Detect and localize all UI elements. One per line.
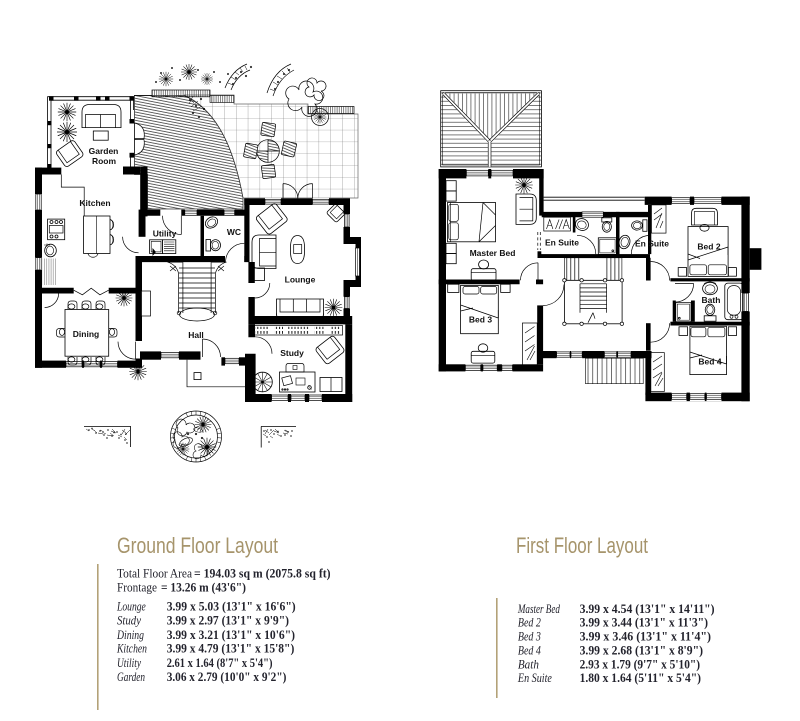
svg-text:Bath: Bath bbox=[702, 295, 721, 305]
svg-text:Hall: Hall bbox=[188, 330, 204, 340]
svg-text:1.80 x 1.64 (5'11" x 5'4"): 1.80 x 1.64 (5'11" x 5'4") bbox=[580, 670, 701, 685]
svg-text:Garden: Garden bbox=[117, 669, 145, 684]
svg-text:Utility: Utility bbox=[153, 229, 177, 239]
svg-text:3.99 x 5.03 (13'1" x 16'6"): 3.99 x 5.03 (13'1" x 16'6") bbox=[167, 599, 296, 614]
svg-text:En Suite: En Suite bbox=[545, 238, 579, 248]
svg-text:Bed 3: Bed 3 bbox=[518, 629, 541, 644]
svg-text:En Suite: En Suite bbox=[635, 239, 669, 249]
svg-text:= 194.03 sq m (2075.8 sq ft): = 194.03 sq m (2075.8 sq ft) bbox=[194, 565, 331, 580]
svg-text:Bed 3: Bed 3 bbox=[469, 315, 492, 325]
svg-text:Study: Study bbox=[117, 613, 141, 628]
svg-text:Frontage: Frontage bbox=[117, 580, 157, 595]
svg-text:Study: Study bbox=[280, 348, 304, 358]
svg-text:Lounge: Lounge bbox=[116, 599, 146, 614]
svg-text:WC: WC bbox=[227, 227, 241, 237]
svg-text:3.06 x 2.79 (10'0" x 9'2"): 3.06 x 2.79 (10'0" x 9'2") bbox=[167, 669, 287, 684]
svg-text:3.99 x 4.54 (13'1" x 14'11"): 3.99 x 4.54 (13'1" x 14'11") bbox=[580, 601, 715, 616]
svg-text:Kitchen: Kitchen bbox=[116, 641, 147, 656]
svg-text:3.99 x 2.97 (13'1" x 9'9"): 3.99 x 2.97 (13'1" x 9'9") bbox=[167, 613, 289, 628]
svg-text:Bath: Bath bbox=[518, 656, 539, 671]
svg-text:Lounge: Lounge bbox=[285, 275, 316, 285]
svg-text:3.99 x 3.44 (13'1" x 11'3"): 3.99 x 3.44 (13'1" x 11'3") bbox=[580, 615, 708, 630]
svg-text:First Floor Layout: First Floor Layout bbox=[516, 533, 648, 558]
svg-text:3.99 x 3.21 (13'1" x 10'6"): 3.99 x 3.21 (13'1" x 10'6") bbox=[167, 627, 295, 642]
svg-text:Room: Room bbox=[92, 156, 117, 166]
svg-text:Ground Floor Layout: Ground Floor Layout bbox=[117, 533, 278, 558]
svg-text:2.61 x 1.64 (8'7" x 5'4"): 2.61 x 1.64 (8'7" x 5'4") bbox=[167, 655, 273, 670]
svg-text:En Suite: En Suite bbox=[517, 670, 552, 685]
svg-text:Dining: Dining bbox=[73, 329, 99, 339]
svg-text:Bed 4: Bed 4 bbox=[698, 357, 721, 367]
svg-text:Bed 4: Bed 4 bbox=[518, 642, 541, 657]
svg-text:Utility: Utility bbox=[117, 655, 141, 670]
svg-text:Total Floor Area: Total Floor Area bbox=[117, 565, 192, 580]
svg-text:Bed 2: Bed 2 bbox=[697, 242, 720, 252]
svg-text:= 13.26 m (43'6"): = 13.26 m (43'6") bbox=[161, 580, 246, 595]
svg-text:3.99 x 4.79 (13'1" x 15'8"): 3.99 x 4.79 (13'1" x 15'8") bbox=[167, 641, 295, 656]
svg-text:Bed 2: Bed 2 bbox=[518, 615, 541, 630]
svg-text:Master Bed: Master Bed bbox=[470, 248, 516, 258]
svg-text:Kitchen: Kitchen bbox=[79, 198, 110, 208]
svg-text:3.99 x 2.68 (13'1" x 8'9"): 3.99 x 2.68 (13'1" x 8'9") bbox=[580, 642, 703, 657]
svg-text:Garden: Garden bbox=[89, 146, 119, 156]
svg-text:2.93 x 1.79 (9'7" x 5'10"): 2.93 x 1.79 (9'7" x 5'10") bbox=[580, 656, 700, 671]
svg-text:Master Bed: Master Bed bbox=[517, 601, 560, 616]
svg-text:Dining: Dining bbox=[116, 627, 144, 642]
svg-text:3.99 x 3.46 (13'1" x 11'4"): 3.99 x 3.46 (13'1" x 11'4") bbox=[580, 629, 711, 644]
